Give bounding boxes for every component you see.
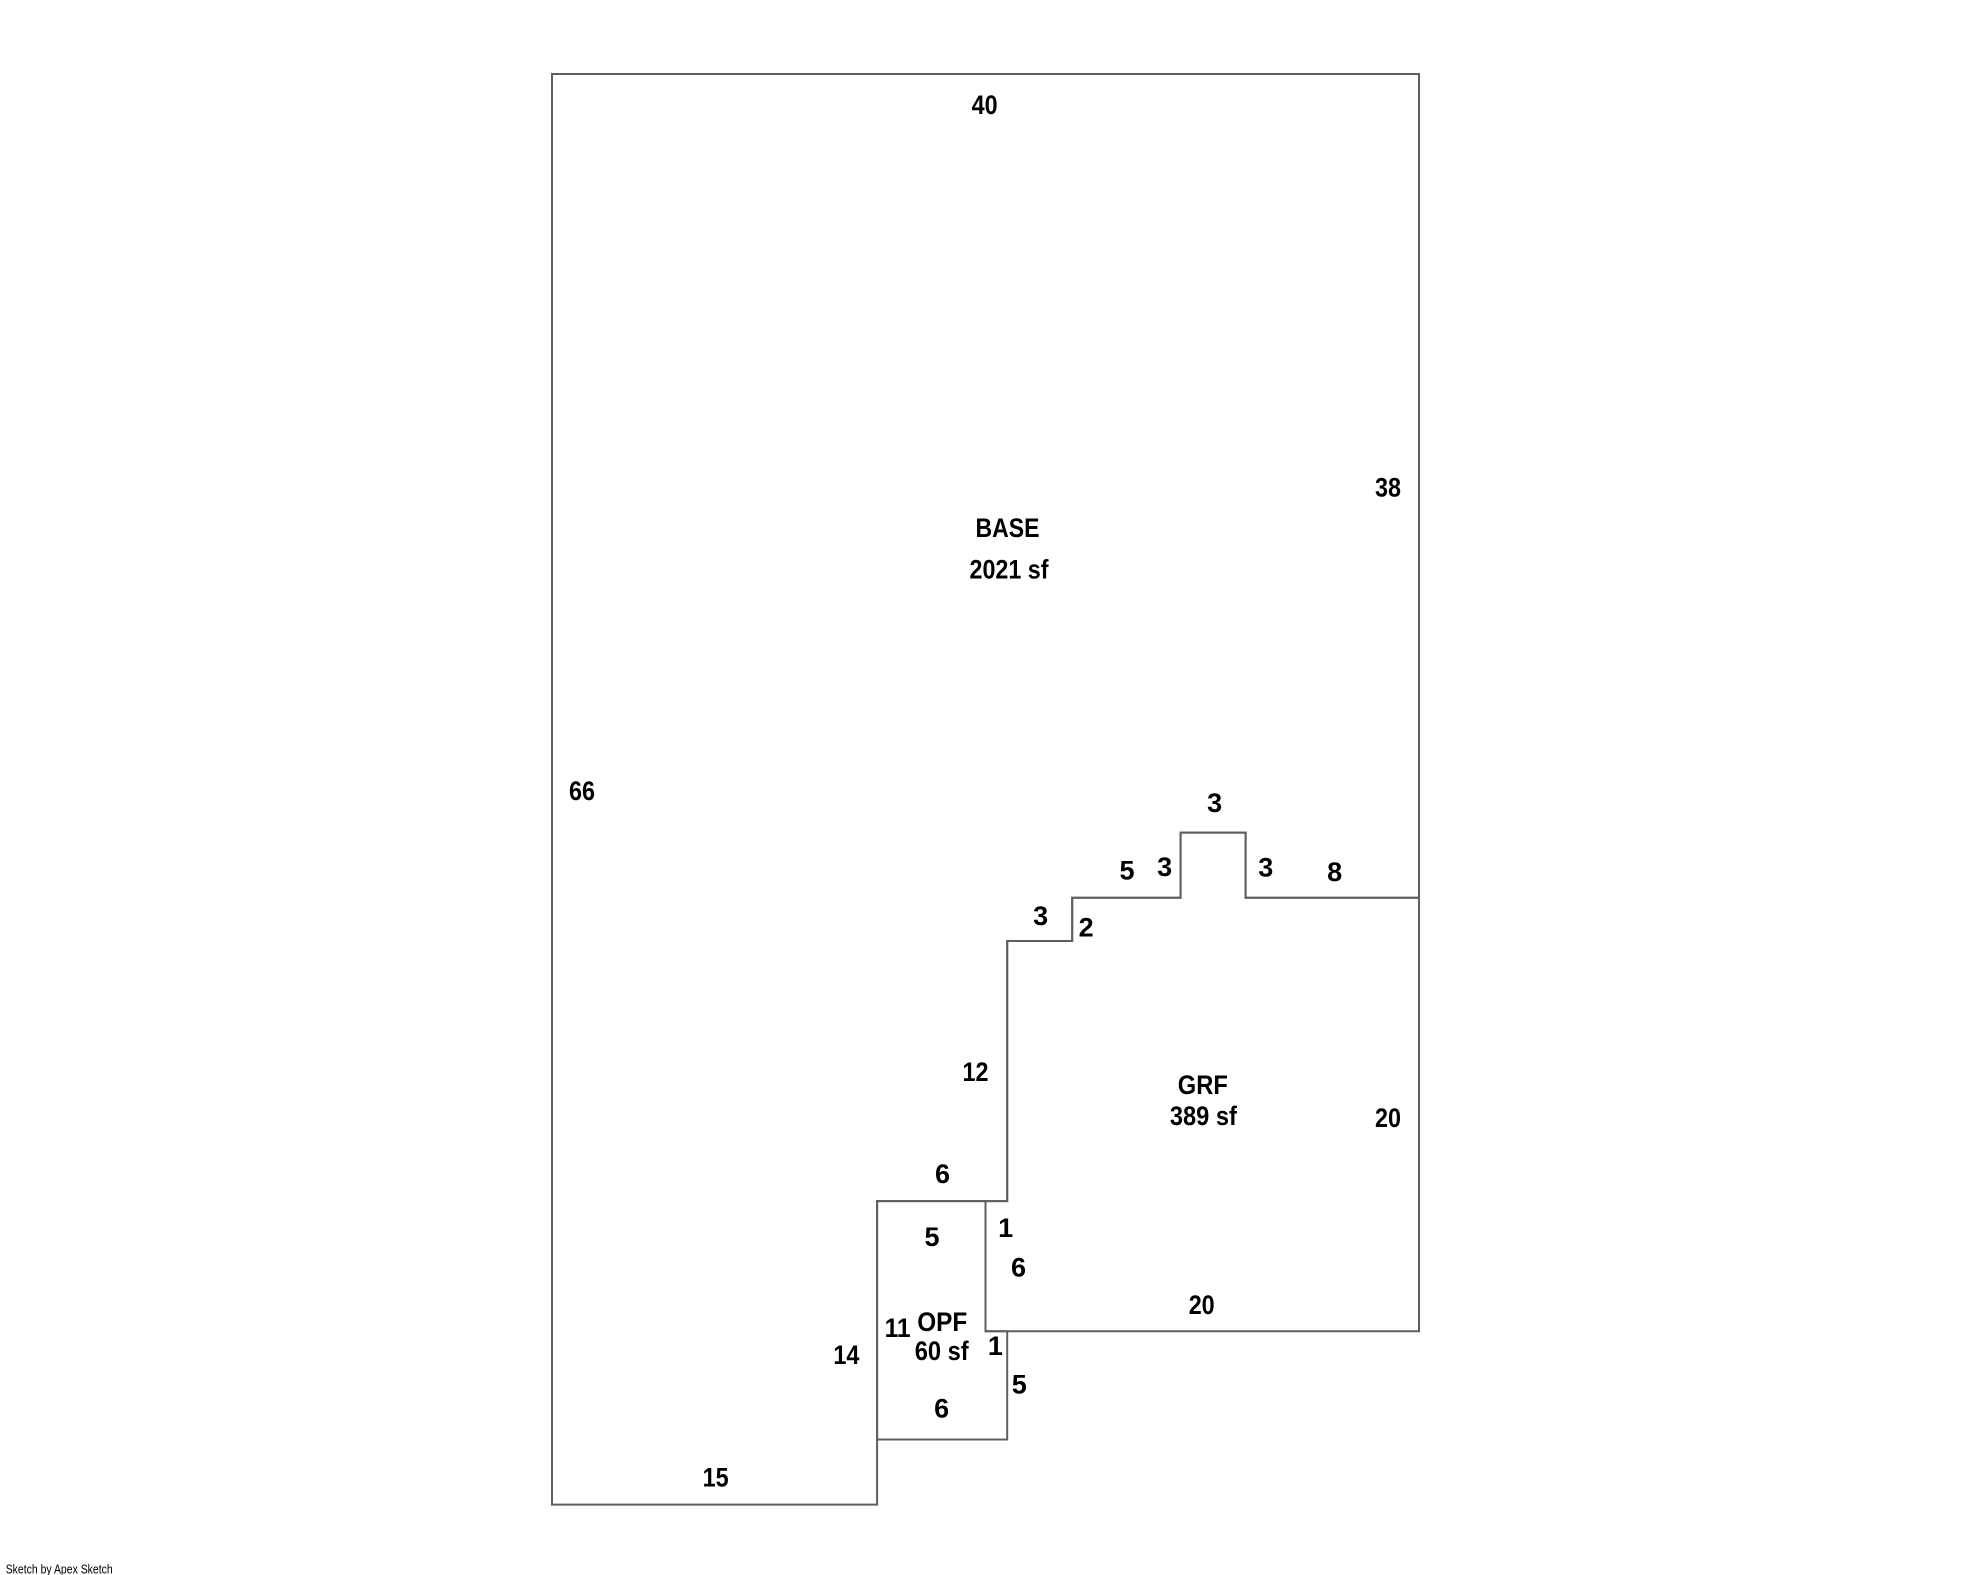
svg-text:1: 1 [998,1213,1013,1243]
svg-text:3: 3 [1157,852,1172,882]
svg-text:2021 sf: 2021 sf [970,555,1050,585]
svg-text:40: 40 [972,90,998,120]
svg-text:Sketch by Apex Sketch: Sketch by Apex Sketch [6,1563,113,1575]
svg-text:14: 14 [833,1340,859,1370]
svg-text:60 sf: 60 sf [915,1336,970,1366]
svg-text:3: 3 [1258,853,1273,883]
svg-text:389 sf: 389 sf [1170,1101,1238,1131]
svg-text:38: 38 [1375,473,1401,503]
svg-text:6: 6 [935,1159,950,1189]
svg-text:66: 66 [569,776,595,806]
svg-text:8: 8 [1327,857,1342,887]
svg-text:GRF: GRF [1178,1070,1228,1100]
svg-text:15: 15 [703,1462,729,1492]
svg-text:12: 12 [963,1057,989,1087]
svg-text:6: 6 [1011,1253,1026,1283]
svg-text:OPF: OPF [917,1307,967,1337]
svg-text:6: 6 [934,1394,949,1424]
svg-text:3: 3 [1033,901,1048,931]
svg-text:3: 3 [1207,788,1222,818]
svg-text:20: 20 [1375,1103,1401,1133]
svg-text:5: 5 [924,1222,939,1252]
svg-text:BASE: BASE [976,513,1040,543]
svg-text:1: 1 [988,1331,1003,1361]
svg-text:2: 2 [1079,913,1094,943]
svg-text:11: 11 [885,1313,911,1343]
svg-text:5: 5 [1012,1370,1027,1400]
svg-text:5: 5 [1119,855,1134,885]
svg-text:20: 20 [1189,1290,1215,1320]
